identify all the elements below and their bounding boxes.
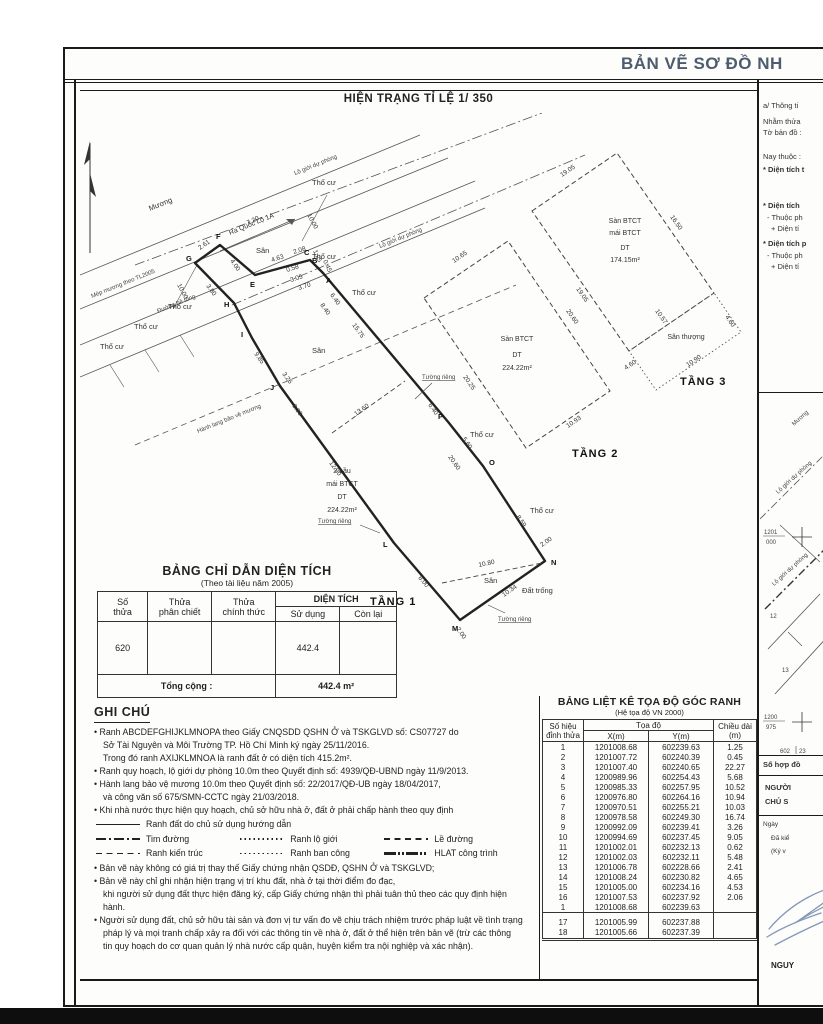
area-table-title: BẢNG CHỈ DẪN DIỆN TÍCH <box>97 564 397 578</box>
legend-label: Ranh lộ giới <box>290 833 337 846</box>
coord-row: 31201007.40602240.6522.27 <box>543 762 757 772</box>
svg-text:10.57: 10.57 <box>653 308 668 326</box>
col-x: X(m) <box>584 731 649 742</box>
legend-label: Ranh kiến trúc <box>146 847 203 860</box>
coord-row: 81200978.58602249.3016.74 <box>543 812 757 822</box>
side-text: Nay thuộc : <box>763 152 801 161</box>
note-line: pháp lý và mọi tranh chấp xảy ra đối với… <box>94 927 531 940</box>
scanned-survey-document: BẢN VẼ SƠ ĐỒ NH HIỆN TRẠNG TỈ LỆ 1/ 350 <box>0 0 823 1024</box>
area-table-total-row: Tổng cộng : 442.4 m² <box>98 675 397 698</box>
signer-name: NGUY <box>771 961 794 970</box>
note-line: và công văn số 675/SMN-CCTC ngày 21/03/2… <box>94 791 531 804</box>
grid-label: 1200 <box>764 715 778 721</box>
yard-label: Sân <box>484 576 497 585</box>
svg-text:3.70: 3.70 <box>297 281 312 292</box>
col-vertex-id: Số hiệuđỉnh thửa <box>543 720 584 742</box>
svg-text:I: I <box>241 330 243 339</box>
residential-label: Thổ cư <box>100 342 124 351</box>
yard-label: Sân <box>312 346 325 355</box>
svg-text:12.90: 12.90 <box>327 460 342 478</box>
residential-label: Thổ cư <box>530 506 554 515</box>
legend-label: Ranh ban công <box>290 847 350 860</box>
grid-label: 975 <box>766 725 777 731</box>
side-text: + Diện tí <box>771 262 799 271</box>
svg-text:19.05: 19.05 <box>559 164 577 179</box>
roof-terrace-label: Sân thượng <box>667 334 704 341</box>
svg-text:10.65: 10.65 <box>451 250 469 265</box>
svg-text:P: P <box>438 412 443 421</box>
svg-text:A: A <box>326 276 332 285</box>
coord-row: 131201006.78602228.662.41 <box>543 862 757 872</box>
coordinate-table: BẢNG LIỆT KÊ TỌA ĐỘ GÓC RANH (Hệ tọa độ … <box>542 696 757 941</box>
svg-text:2.00: 2.00 <box>454 626 467 641</box>
private-wall-label: Tường riêng <box>498 617 531 623</box>
col-coords: Tọa độ <box>584 720 714 731</box>
svg-text:L: L <box>383 540 388 549</box>
svg-text:10.34: 10.34 <box>501 583 519 598</box>
coord-row: 151201005.00602234.164.53 <box>543 882 757 892</box>
yard-label: Sân <box>256 246 269 255</box>
floor3-desc: mái BTCT <box>609 230 641 237</box>
svg-text:13.60: 13.60 <box>353 402 371 417</box>
area-table-row: 620 442.4 <box>98 622 397 675</box>
coord-row: 111201002.01602232.130.62 <box>543 842 757 852</box>
svg-text:0.58: 0.58 <box>285 263 300 274</box>
signature <box>763 867 823 957</box>
side-text: Nhằm thửa <box>763 117 801 126</box>
note-line: Trong đó ranh AXIJKLMNOA là ranh đất ở c… <box>94 752 531 765</box>
svg-text:15.75: 15.75 <box>350 322 365 340</box>
svg-text:J: J <box>270 383 274 392</box>
coord-row: 161201007.53602237.922.06 <box>543 892 757 902</box>
svg-text:8.00: 8.00 <box>416 575 430 589</box>
north-arrow-icon <box>84 141 96 253</box>
note-line: • Ranh ABCDEFGHIJKLMNOPA theo Giấy CNQSD… <box>94 726 531 739</box>
svg-text:20.60: 20.60 <box>446 454 461 472</box>
grid-label: 000 <box>766 540 777 546</box>
svg-text:N: N <box>551 558 556 567</box>
note-line: khi người sử dụng đất thực hiện đăng ký,… <box>94 888 531 914</box>
legend-label: Lề đường <box>434 833 473 846</box>
coord-row: 11201008.68602239.63 <box>543 902 757 913</box>
private-wall-label: Tường riêng <box>318 519 351 525</box>
notes-section: GHI CHÚ • Ranh ABCDEFGHIJKLMNOPA theo Gi… <box>80 696 540 979</box>
vacant-land-label: Đất trống <box>522 586 553 595</box>
note-line: • Khi nhà nước thực hiện quy hoạch, chủ … <box>94 804 531 817</box>
road-reserve-label: Lộ giới dự phòng <box>379 227 424 250</box>
note-line: • Bản vẽ này chỉ ghi nhận hiện trạng vị … <box>94 875 531 888</box>
svg-text:20.60: 20.60 <box>564 308 579 326</box>
side-text: * Diện tích <box>763 201 800 210</box>
floor2-desc: DT <box>512 352 522 359</box>
floor3-desc: 174.15m² <box>610 257 640 264</box>
note-line: • Ranh quy hoạch, lộ giới dự phòng 10.0m… <box>94 765 531 778</box>
floor2-outline <box>424 241 610 448</box>
note-line: Sở Tài Nguyên và Môi Trường TP. Hồ Chí M… <box>94 739 531 752</box>
legend-dashdot-line-icon <box>96 838 140 839</box>
side-text: * Diện tích t <box>763 165 804 174</box>
side-divider <box>757 392 823 393</box>
coord-row: 41200989.96602254.435.68 <box>543 772 757 782</box>
svg-text:20.25: 20.25 <box>461 374 476 392</box>
side-section-a-heading: a/ Thông ti <box>763 101 798 110</box>
coord-table-title: BẢNG LIỆT KÊ TỌA ĐỘ GÓC RANH <box>542 696 757 708</box>
svg-text:2.61: 2.61 <box>197 238 212 251</box>
floor2-desc: 224.22m² <box>502 365 532 372</box>
inner-left-border <box>74 79 76 1005</box>
svg-text:H: H <box>224 300 229 309</box>
area-table-subtitle: (Theo tài liệu năm 2005) <box>97 578 397 588</box>
notes-heading: GHI CHÚ <box>94 703 150 723</box>
coord-row: 61200976.80602264.1610.94 <box>543 792 757 802</box>
road-reserve-label: Lộ giới dự phòng <box>775 460 813 495</box>
date-label: Ngày <box>763 821 778 828</box>
residential-label: Thổ cư <box>168 302 192 311</box>
title-band-rule <box>65 82 823 83</box>
note-line: • Hành lang bảo vệ mương 10.0m theo Quyế… <box>94 778 531 791</box>
svg-text:3.26: 3.26 <box>280 371 293 386</box>
coord-row: 181201005.66602237.39 <box>543 928 757 940</box>
svg-text:F: F <box>216 232 221 241</box>
side-divider <box>757 815 823 816</box>
road-lines <box>80 113 585 445</box>
bottom-boxes-rule <box>80 979 757 981</box>
residential-label: Thổ cư <box>312 178 336 187</box>
floor2-title: TẦNG 2 <box>572 447 618 460</box>
side-text: Tờ bản đồ : <box>763 128 802 137</box>
svg-text:10.80: 10.80 <box>478 559 496 569</box>
signer-label: CHỦ S <box>765 797 788 806</box>
svg-text:8.59: 8.59 <box>514 514 527 529</box>
residential-label: Thổ cư <box>134 322 158 331</box>
svg-text:2.00: 2.00 <box>539 535 554 548</box>
drawing-sheet: BẢN VẼ SƠ ĐỒ NH HIỆN TRẠNG TỈ LỆ 1/ 350 <box>63 47 823 1007</box>
plan-subtitle: HIỆN TRẠNG TỈ LỆ 1/ 350 <box>80 93 757 105</box>
parcel-number: 12 <box>770 614 777 620</box>
svg-text:9.85: 9.85 <box>252 351 265 366</box>
col-official-parcel: Thửachính thức <box>212 592 276 622</box>
legend-dashed-line-icon <box>384 838 428 839</box>
svg-text:10.93: 10.93 <box>565 415 583 430</box>
coord-row: 21201007.72602240.390.45 <box>543 752 757 762</box>
svg-text:O: O <box>489 458 495 467</box>
area-index-table: BẢNG CHỈ DẪN DIỆN TÍCH (Theo tài liệu nă… <box>97 564 397 698</box>
side-text: * Diện tích p <box>763 239 806 248</box>
parcel-number: 13 <box>782 668 789 674</box>
side-divider <box>757 755 823 756</box>
svg-text:G: G <box>186 254 192 263</box>
sheet-title: BẢN VẼ SƠ ĐỒ NH <box>621 54 783 74</box>
svg-text:E: E <box>250 280 255 289</box>
house-desc: DT <box>337 494 347 501</box>
note-line: tin quy hoạch do cơ quan quản lý nhà nướ… <box>94 940 531 953</box>
house-desc: mái BTCT <box>326 481 358 488</box>
side-text: + Diện tí <box>771 224 799 233</box>
legend-dotted-line-icon <box>240 838 284 839</box>
col-length: Chiều dài(m) <box>714 720 757 742</box>
road-reserve-label: Lộ giới dự phòng <box>294 154 339 177</box>
coord-row: 101200994.69602237.459.05 <box>543 832 757 842</box>
svg-text:10.90: 10.90 <box>685 354 703 369</box>
legend-solid-line-icon <box>96 824 140 826</box>
coord-table-subtitle: (Hệ tọa độ VN 2000) <box>542 708 757 717</box>
svg-text:4.60: 4.60 <box>723 314 736 329</box>
column-divider <box>757 79 759 1005</box>
svg-text:10.00: 10.00 <box>175 283 189 301</box>
screenshot-bottom-bar <box>0 1008 823 1024</box>
side-text: - Thuộc ph <box>767 213 803 222</box>
residential-label: Thổ cư <box>470 430 494 439</box>
floor3-desc: Sàn BTCT <box>609 218 642 225</box>
svg-text:16.50: 16.50 <box>668 214 683 232</box>
coord-row: 11201008.68602239.631.25 <box>543 742 757 753</box>
legend-dotted-line-icon <box>240 853 284 854</box>
contract-number-label: Số hợp đồ <box>763 760 800 769</box>
canal-edge-label: Mép mương theo TL2005 <box>91 268 157 299</box>
floor3-title: TẦNG 3 <box>680 375 726 388</box>
grid-cross <box>792 527 812 547</box>
svg-text:3.05: 3.05 <box>289 273 304 284</box>
svg-text:4.63: 4.63 <box>270 253 285 264</box>
legend-dashed-line-icon <box>96 853 140 854</box>
col-parcel-no: Sốthửa <box>98 592 148 622</box>
col-split-parcel: Thửaphân chiết <box>148 592 212 622</box>
col-area-left: Còn lại <box>340 607 397 622</box>
legend-hlat-line-icon <box>384 852 428 855</box>
side-divider <box>757 775 823 776</box>
coord-row: 71200970.51602255.2110.03 <box>543 802 757 812</box>
sign-note-label: (Ký v <box>771 848 786 855</box>
note-line: • Bản vẽ này không có giá trị thay thế G… <box>94 862 531 875</box>
svg-text:10.00: 10.00 <box>305 213 319 231</box>
legend-label: Tim đường <box>146 833 189 846</box>
signer-label: NGƯỜI <box>765 783 791 792</box>
legend-label: HLAT công trình <box>434 847 497 860</box>
coord-row: 51200985.33602257.9510.52 <box>543 782 757 792</box>
grid-cross <box>792 712 812 732</box>
coord-row: 171201005.99602237.88 <box>543 913 757 928</box>
floor3-desc: DT <box>620 245 630 252</box>
plan-panel-top-rule <box>80 90 757 91</box>
canal-label: Mương <box>147 195 173 213</box>
legend-label: Ranh đất do chủ sử dụng hướng dẫn <box>146 818 291 831</box>
residential-label: Thổ cư <box>352 288 376 297</box>
note-line: • Người sử dụng đất, chủ sở hữu tài sản … <box>94 914 531 927</box>
col-area: DIỆN TÍCH <box>276 592 397 607</box>
col-area-used: Sử dụng <box>276 607 340 622</box>
canal-corridor-label: Hành lang bảo vệ mương <box>197 404 263 435</box>
location-map: Mương Lộ giới dự phòng Lộ giới dự phòng … <box>760 394 823 755</box>
svg-text:8.40: 8.40 <box>318 302 331 317</box>
floor2-desc: Sàn BTCT <box>501 336 534 343</box>
private-wall-label: Tường riêng <box>422 375 455 381</box>
side-text: - Thuộc ph <box>767 251 803 260</box>
coord-row: 141201008.24602230.824.65 <box>543 872 757 882</box>
floor3-outline <box>532 153 714 351</box>
house-desc: 224.22m² <box>327 507 357 514</box>
grid-label: 1201 <box>764 530 778 536</box>
col-y: Y(m) <box>649 731 714 742</box>
coord-row: 91200992.09602239.413.26 <box>543 822 757 832</box>
checked-label: Đã kiể <box>771 835 789 842</box>
coord-row: 121201002.03602232.115.48 <box>543 852 757 862</box>
svg-text:19.05: 19.05 <box>574 286 589 304</box>
canal-label: Mương <box>791 410 810 428</box>
